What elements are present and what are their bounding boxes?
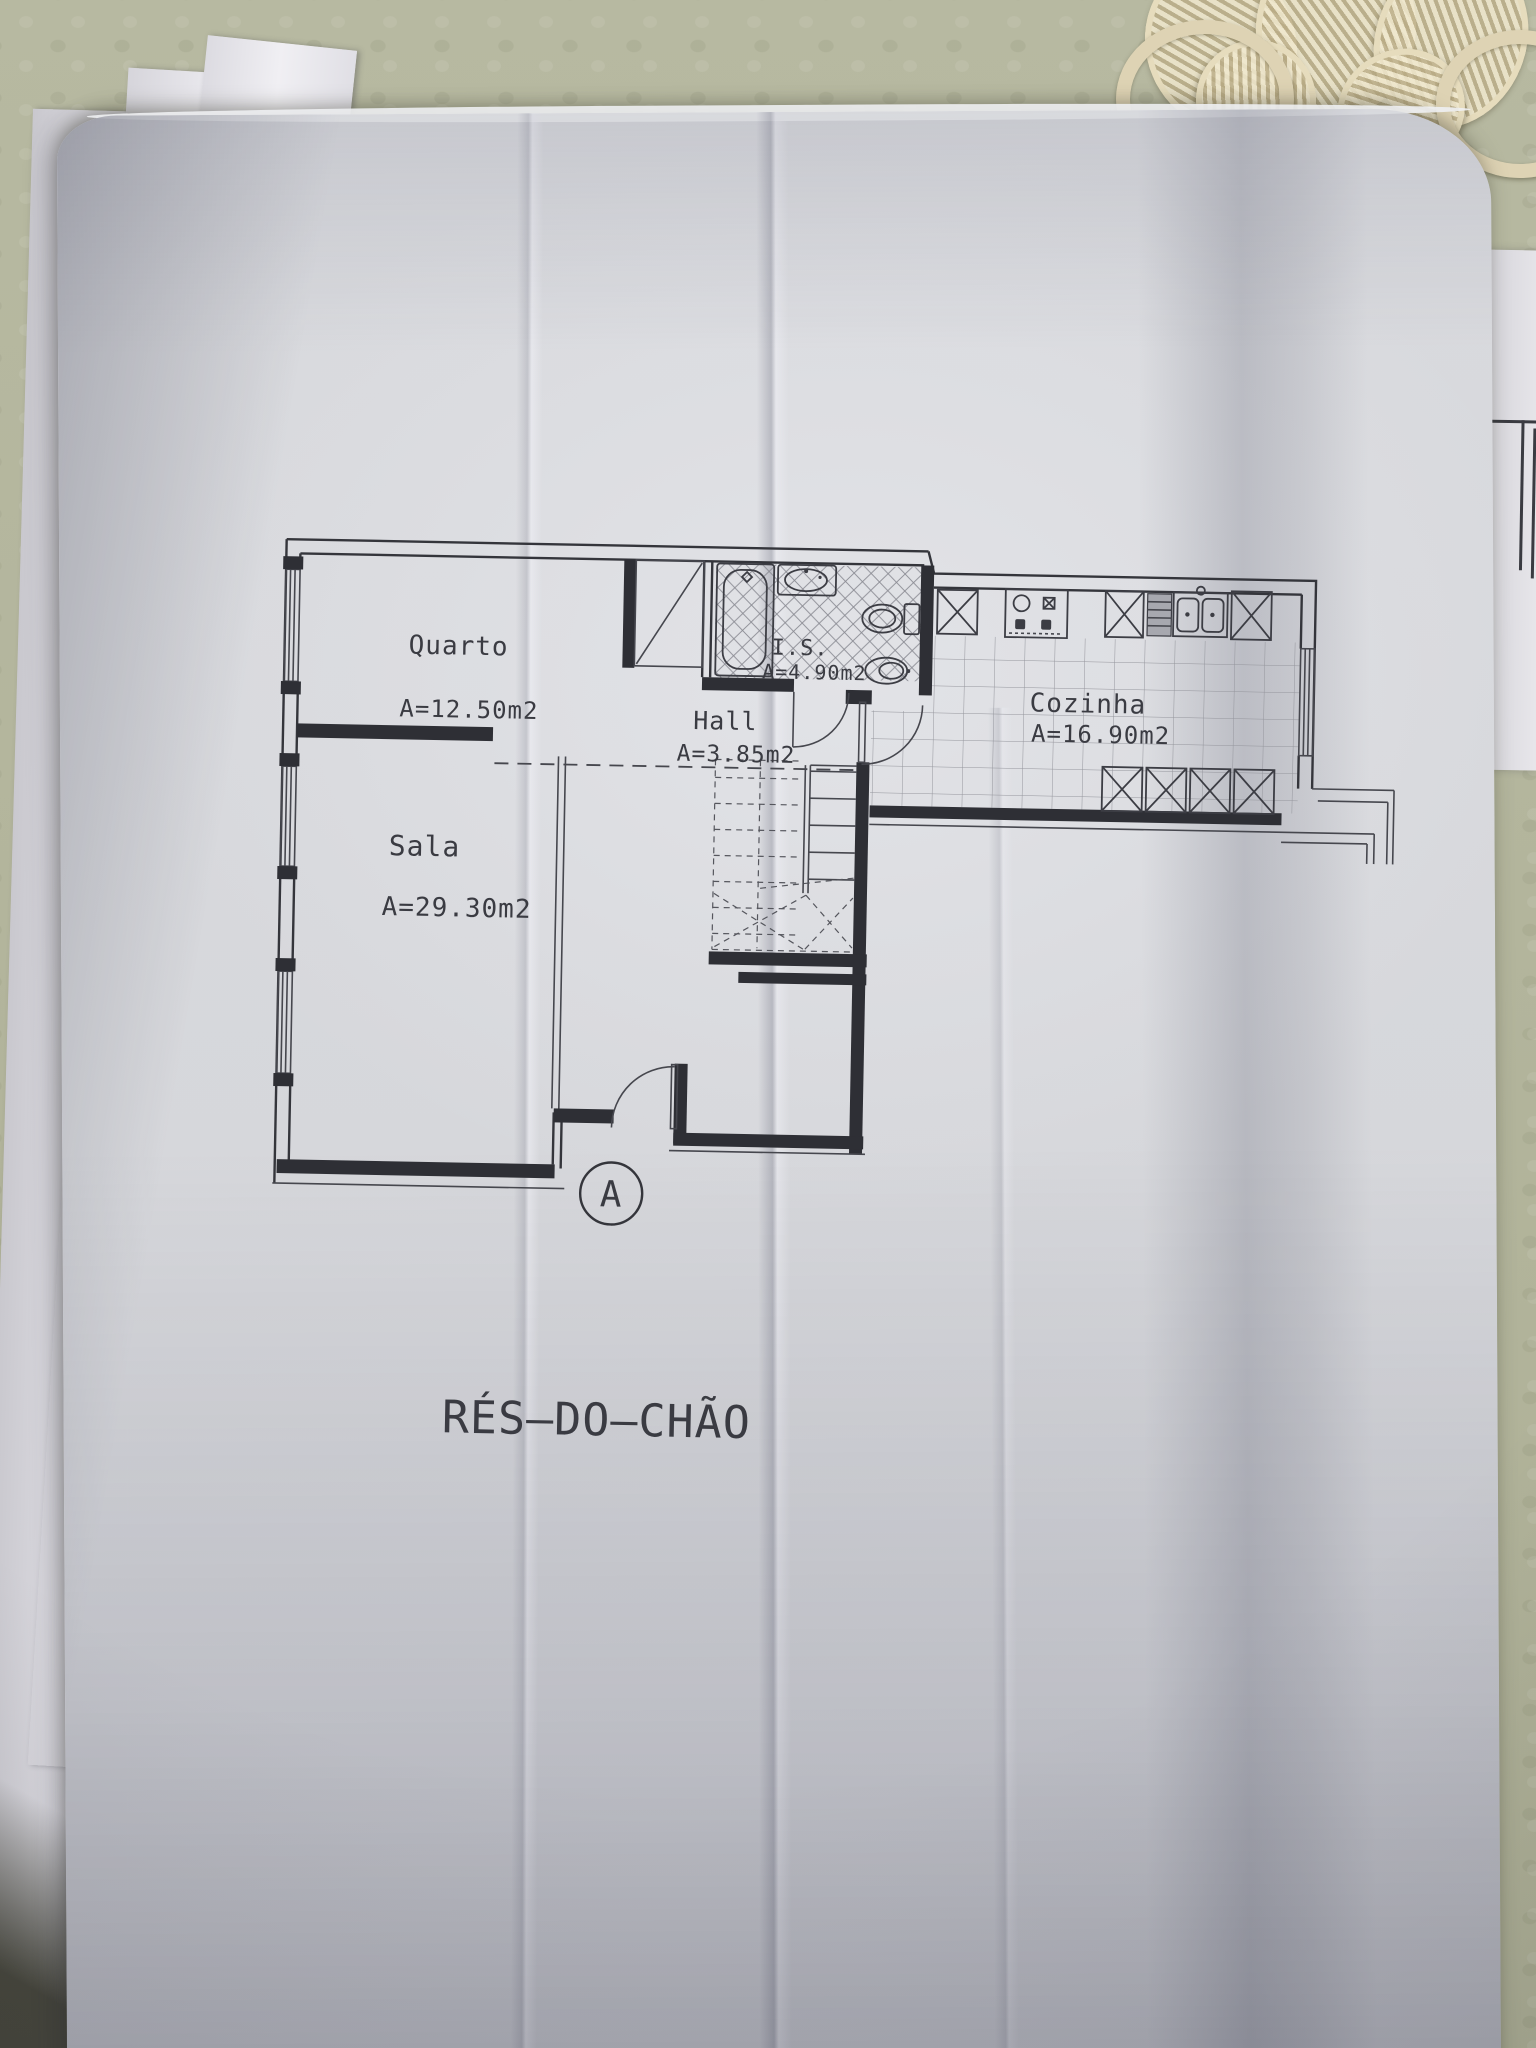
svg-text:A=3.85m2: A=3.85m2 xyxy=(676,741,795,769)
floor-plan: Quarto A=12.50m2 Sala A=29.30m2 Hall A=3… xyxy=(259,511,1437,1483)
kitchen-sink-icon xyxy=(1173,586,1228,637)
entry-door xyxy=(611,1063,677,1128)
svg-text:Hall: Hall xyxy=(693,706,758,736)
floor-title: RÉS—DO—CHÃO xyxy=(441,1390,751,1449)
kitchen-window xyxy=(1299,649,1315,756)
svg-text:Cozinha: Cozinha xyxy=(1029,688,1146,720)
svg-text:A=4.90m2: A=4.90m2 xyxy=(762,659,867,685)
stove-icon xyxy=(1005,589,1068,638)
svg-text:Quarto: Quarto xyxy=(408,631,508,663)
appliance-box-icon xyxy=(937,590,978,635)
svg-text:A: A xyxy=(599,1174,622,1215)
stairs xyxy=(712,759,857,952)
bathroom-door xyxy=(793,692,849,748)
room-label-quarto: Quarto A=12.50m2 xyxy=(399,630,540,725)
photo-scene: Quarto A=12.50m2 Sala A=29.30m2 Hall A=3… xyxy=(0,0,1536,2048)
svg-text:A=29.30m2: A=29.30m2 xyxy=(381,892,531,925)
left-wall-windows xyxy=(273,556,303,1086)
drainer-icon xyxy=(1147,594,1172,636)
closet-icon xyxy=(634,560,704,667)
svg-text:A=12.50m2: A=12.50m2 xyxy=(399,694,539,725)
svg-text:A=16.90m2: A=16.90m2 xyxy=(1031,719,1171,750)
svg-text:Sala: Sala xyxy=(389,829,461,863)
room-label-hall: Hall A=3.85m2 xyxy=(676,706,796,769)
section-marker-a: A xyxy=(580,1162,643,1225)
room-label-sala: Sala A=29.30m2 xyxy=(381,829,533,925)
appliance-box-icon xyxy=(1231,591,1272,640)
appliance-box-icon xyxy=(1105,591,1144,638)
svg-text:I.S.: I.S. xyxy=(771,635,828,661)
